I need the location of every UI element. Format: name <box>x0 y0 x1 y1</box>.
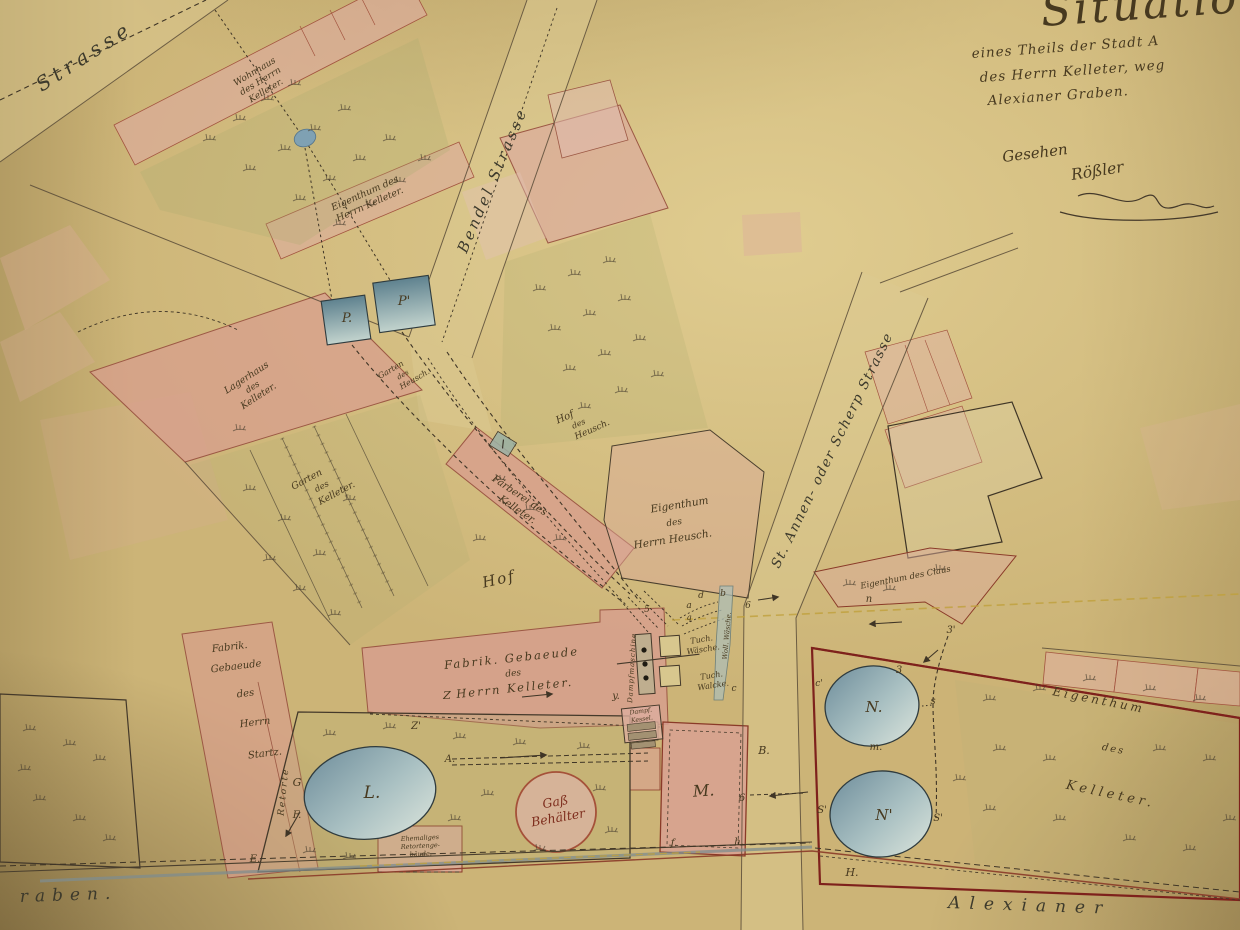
title-line-2: des Herrn Kelleter, weg <box>979 57 1166 86</box>
marker-f: F. <box>292 810 302 821</box>
marker-five: 5 <box>644 605 650 615</box>
title-block: Situation eines Theils der Stadt A des H… <box>971 0 1240 220</box>
label-tuch-waesche: Tuch.Wäsche. <box>684 632 720 656</box>
marker-c-prime: c' <box>815 679 823 689</box>
marker-s-small: s <box>930 696 935 707</box>
marker-m-small: m. <box>870 742 883 753</box>
title-line-1: eines Theils der Stadt A <box>971 33 1160 62</box>
marker-three: 3 <box>896 665 902 676</box>
parcel-outlined-right <box>888 402 1042 558</box>
marker-six: 6 <box>739 793 746 804</box>
marker-m: M. <box>691 780 715 801</box>
marker-q-small: q <box>686 613 691 622</box>
marker-n-prime: N' <box>874 806 892 824</box>
marker-s-prime-e: S' <box>933 813 943 824</box>
marker-z-prime: Z' <box>410 721 421 732</box>
marker-b: B. <box>757 744 770 757</box>
marker-e: E. <box>249 854 260 865</box>
marker-p: P. <box>341 311 352 326</box>
marker-six-street: 6 <box>745 601 751 611</box>
marker-n: N. <box>865 698 883 716</box>
building-m-annex <box>630 748 660 790</box>
marker-f-small: f. <box>670 838 678 849</box>
map-canvas: Strasse Bendel Strasse St. Annen- oder S… <box>0 0 1240 930</box>
marker-p-prime: P' <box>397 294 410 309</box>
marker-l: L. <box>363 783 381 803</box>
graben-label-right: Alexianer <box>946 893 1112 919</box>
marker-a-small: a <box>686 601 691 611</box>
map-photo: Strasse Bendel Strasse St. Annen- oder S… <box>0 0 1240 930</box>
label-hof: Hof <box>479 566 517 591</box>
wash-vat-2 <box>659 665 680 686</box>
marker-y: y. <box>611 691 620 702</box>
map-title-fragment: Situation <box>1039 0 1240 37</box>
signature-flourish <box>1060 193 1218 220</box>
marker-c-small: c <box>731 684 736 694</box>
wash-vat-1 <box>659 635 680 656</box>
garden-center <box>500 214 708 448</box>
marker-b-small: b <box>720 589 726 599</box>
marker-z: Z <box>442 689 451 702</box>
marker-n-small: n <box>866 594 872 605</box>
graben-label-left: raben. <box>19 884 117 907</box>
title-line-3: Alexianer Graben. <box>985 83 1129 109</box>
wash-far-right <box>1140 404 1240 510</box>
marker-g: G <box>293 776 302 789</box>
building-small-right <box>742 212 802 256</box>
marker-d-small: d <box>698 591 704 601</box>
parcel-eigenthum-heusch <box>604 430 764 598</box>
wash-left-2 <box>0 312 95 402</box>
marker-three-prime: 3' <box>946 625 955 636</box>
wash-left-1 <box>0 225 110 330</box>
seen-signature: Rößler <box>1069 158 1127 184</box>
marker-a: A. <box>444 754 455 765</box>
parcel-bottom-left <box>0 694 140 868</box>
svg-text:des: des <box>236 687 255 700</box>
svg-text:des: des <box>505 668 522 680</box>
marker-h-small: h. <box>734 837 744 848</box>
svg-text:bäude.: bäude. <box>409 849 432 858</box>
marker-s-prime-w: S' <box>817 805 827 816</box>
marker-h: H. <box>844 866 858 879</box>
seen-label: Gesehen <box>1001 140 1068 166</box>
